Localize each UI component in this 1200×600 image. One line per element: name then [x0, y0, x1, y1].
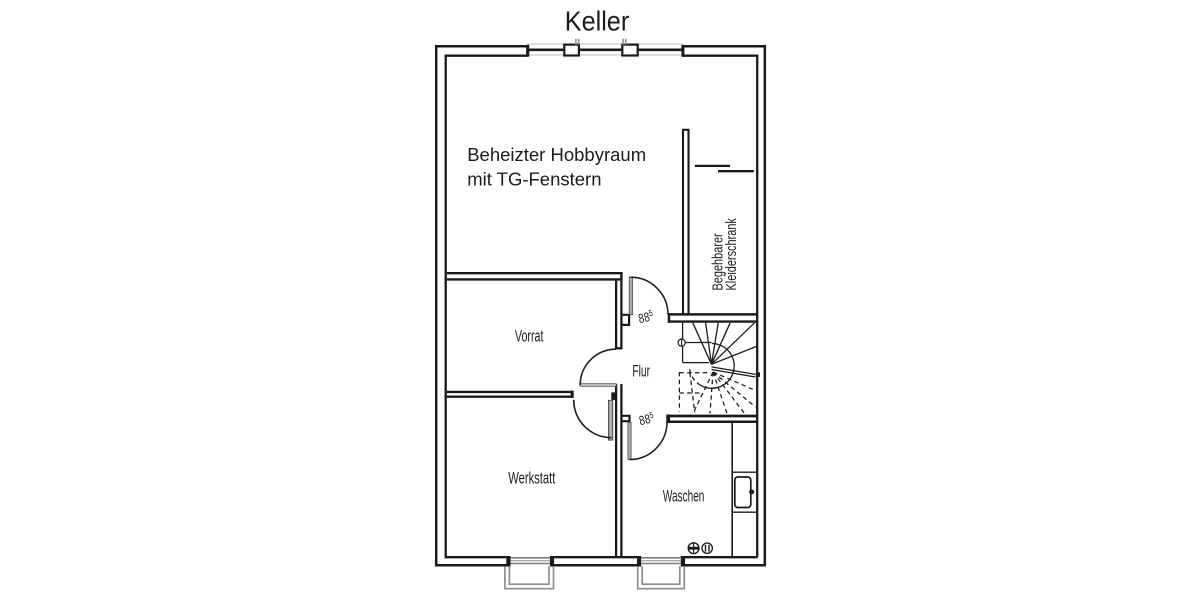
svg-text:885: 885 — [637, 308, 656, 327]
svg-text:Flur: Flur — [632, 362, 650, 380]
svg-text:Werkstatt: Werkstatt — [508, 468, 555, 487]
svg-text:Waschen: Waschen — [663, 487, 705, 505]
svg-text:Vorrat: Vorrat — [515, 326, 544, 345]
svg-text:mit TG-Fenstern: mit TG-Fenstern — [467, 168, 601, 189]
svg-text:Kleiderschrank: Kleiderschrank — [722, 218, 739, 291]
svg-text:Beheizter Hobbyraum: Beheizter Hobbyraum — [467, 144, 646, 165]
svg-text:885: 885 — [638, 410, 657, 429]
svg-text:Keller: Keller — [565, 5, 630, 37]
